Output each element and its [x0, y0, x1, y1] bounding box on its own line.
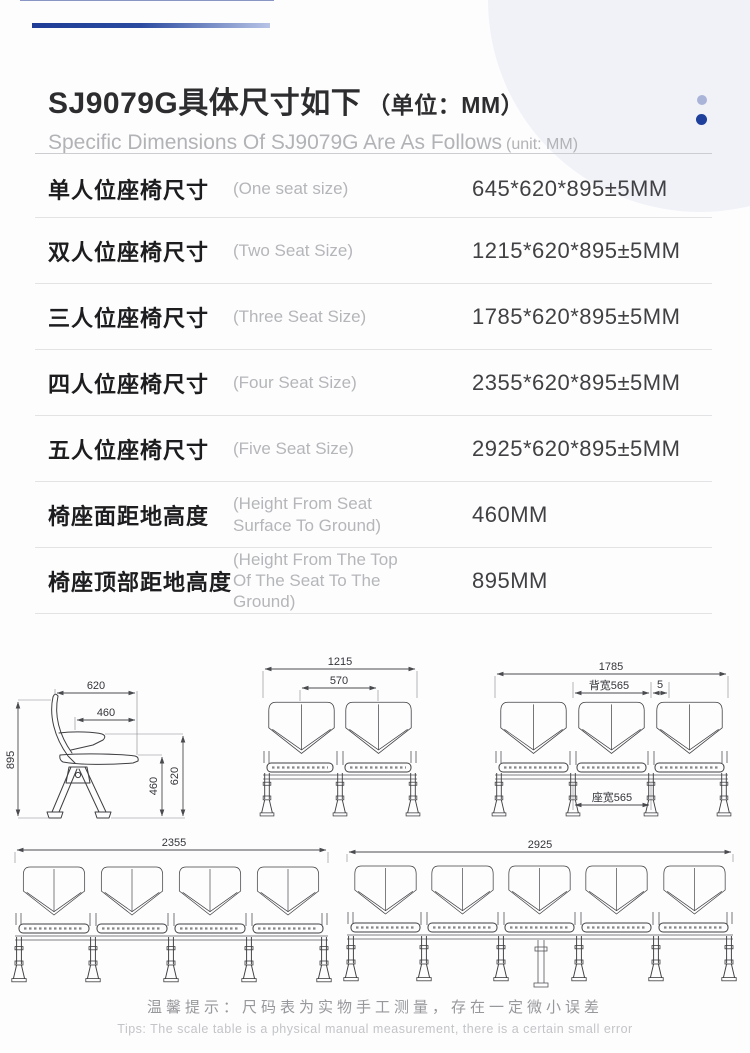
dim-label-total-height: 895: [5, 751, 17, 769]
spec-row-top-height: 椅座顶部距地高度 (Height From The Top Of The Sea…: [35, 548, 712, 614]
spec-row-five-seat: 五人位座椅尺寸 (Five Seat Size) 2925*620*895±5M…: [35, 416, 712, 482]
header-accent-bar: [32, 23, 270, 28]
spec-label-en-text: (Three Seat Size): [233, 306, 366, 327]
two-seat-bench-outline: [260, 702, 420, 816]
drawing-side-view: 895 620 460 460 620: [5, 655, 210, 835]
page: SJ9079G具体尺寸如下（单位：MM） Specific Dimensions…: [0, 0, 750, 1053]
header: SJ9079G具体尺寸如下（单位：MM） Specific Dimensions…: [48, 78, 708, 155]
tip-text-cn: 温馨提示：尺码表为实物手工测量，存在一定微小误差: [0, 996, 750, 1017]
drawing-three-seat-front: 1785 背宽565 5 座宽565: [476, 655, 748, 835]
spec-value: 645*620*895±5MM: [472, 176, 668, 202]
top-edge-line: [20, 0, 274, 1]
dim-label-gap: 5: [657, 679, 663, 691]
spec-label-en-text: (Five Seat Size): [233, 438, 354, 459]
spec-label-cn: 四人位座椅尺寸: [48, 367, 233, 399]
page-subtitle-unit: (unit: MM): [506, 136, 578, 153]
spec-value: 2355*620*895±5MM: [472, 370, 680, 396]
dim-label-seat-width: 座宽565: [592, 790, 632, 804]
five-seat-dimensions: 2925: [347, 839, 733, 862]
spec-row-seat-height: 椅座面距地高度 (Height From Seat Surface To Gro…: [35, 482, 712, 548]
header-divider: [35, 153, 712, 154]
spec-label-en-text: (Height From The Top Of The Seat To The …: [233, 549, 411, 613]
spec-label-en-text: (Four Seat Size): [233, 372, 357, 393]
dim-label-back-width: 背宽565: [589, 678, 629, 692]
spec-value: 1215*620*895±5MM: [472, 238, 680, 264]
dim-label-total-width: 1785: [599, 661, 623, 673]
spec-label-cn: 椅座面距地高度: [48, 499, 233, 531]
spec-label-cn: 椅座顶部距地高度: [48, 565, 233, 597]
spec-table: 单人位座椅尺寸 (One seat size) 645*620*895±5MM …: [35, 160, 712, 614]
page-title: SJ9079G具体尺寸如下（单位：MM）: [48, 78, 708, 122]
spec-label-cn: 双人位座椅尺寸: [48, 235, 233, 267]
spec-label-en: (Height From Seat Surface To Ground): [233, 493, 472, 536]
drawing-five-seat-front: 2925: [338, 833, 748, 998]
page-subtitle-en: Specific Dimensions Of SJ9079G Are As Fo…: [48, 131, 502, 154]
two-seat-dimensions: 1215 570: [263, 656, 417, 701]
spec-label-en: (Two Seat Size): [233, 240, 472, 261]
spec-label-en: (Five Seat Size): [233, 438, 472, 459]
dim-label-total-width: 2925: [528, 839, 552, 851]
footer-tips: 温馨提示：尺码表为实物手工测量，存在一定微小误差 Tips: The scale…: [0, 996, 750, 1036]
spec-value: 895MM: [472, 568, 548, 594]
spec-row-four-seat: 四人位座椅尺寸 (Four Seat Size) 2355*620*895±5M…: [35, 350, 712, 416]
dim-label-total-width: 2355: [162, 837, 186, 849]
side-view-dimensions: 895 620 460 460 620: [5, 680, 185, 818]
spec-label-en: (One seat size): [233, 178, 472, 199]
five-seat-center-support: [534, 940, 548, 987]
spec-label-cn: 五人位座椅尺寸: [48, 433, 233, 465]
dim-label-seat-depth: 460: [97, 707, 115, 719]
spec-row-one-seat: 单人位座椅尺寸 (One seat size) 645*620*895±5MM: [35, 160, 712, 218]
drawing-two-seat-front: 1215 570: [253, 655, 425, 825]
dim-label-total-width: 1215: [328, 656, 352, 668]
page-title-unit: （单位：MM）: [367, 92, 524, 118]
dim-label-back-height: 620: [169, 767, 181, 785]
side-view-chair-outline: [47, 694, 138, 818]
dim-label-seat-height: 460: [148, 777, 160, 795]
spec-value: 460MM: [472, 502, 548, 528]
spec-value: 1785*620*895±5MM: [472, 304, 680, 330]
page-title-cn: SJ9079G具体尺寸如下: [48, 87, 361, 120]
spec-label-en: (Height From The Top Of The Seat To The …: [233, 549, 472, 613]
dim-label-seat-pitch: 570: [330, 675, 348, 687]
spec-value: 2925*620*895±5MM: [472, 436, 680, 462]
spec-label-en: (Three Seat Size): [233, 306, 472, 327]
five-seat-bench-outline: [344, 866, 736, 987]
four-seat-dimensions: 2355: [15, 837, 328, 863]
dim-label-back-depth: 620: [87, 680, 105, 692]
spec-label-cn: 单人位座椅尺寸: [48, 173, 233, 205]
tip-text-en: Tips: The scale table is a physical manu…: [0, 1022, 750, 1036]
spec-row-two-seat: 双人位座椅尺寸 (Two Seat Size) 1215*620*895±5MM: [35, 218, 712, 284]
spec-label-cn: 三人位座椅尺寸: [48, 301, 233, 333]
spec-label-en-text: (Height From Seat Surface To Ground): [233, 493, 411, 536]
spec-label-en-text: (Two Seat Size): [233, 240, 353, 261]
spec-label-en-text: (One seat size): [233, 178, 348, 199]
spec-row-three-seat: 三人位座椅尺寸 (Three Seat Size) 1785*620*895±5…: [35, 284, 712, 350]
page-subtitle: Specific Dimensions Of SJ9079G Are As Fo…: [48, 131, 708, 155]
four-seat-bench-outline: [12, 867, 331, 982]
drawing-four-seat-front: 2355: [8, 833, 342, 993]
spec-label-en: (Four Seat Size): [233, 372, 472, 393]
